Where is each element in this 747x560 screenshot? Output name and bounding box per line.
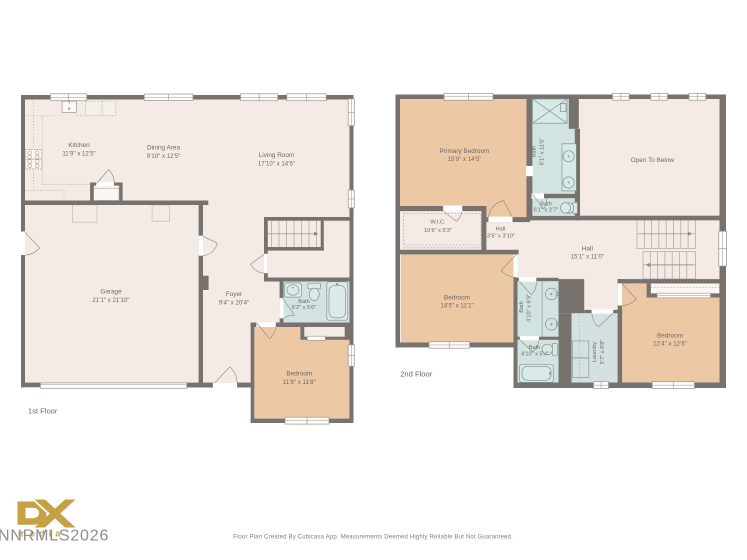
svg-text:6’2" x 5’0": 6’2" x 5’0" — [292, 305, 317, 311]
svg-text:2nd Floor: 2nd Floor — [400, 370, 433, 379]
svg-text:Laundry: Laundry — [592, 342, 598, 362]
svg-text:Bath: Bath — [519, 301, 525, 313]
svg-text:Bedroom: Bedroom — [286, 371, 312, 378]
svg-text:Garage: Garage — [100, 289, 122, 296]
svg-text:Floor Plan Created By Cubicasa: Floor Plan Created By Cubicasa App. Meas… — [233, 535, 513, 541]
svg-text:12’4" x 12’6": 12’4" x 12’6" — [653, 341, 687, 348]
svg-text:NNRMLS2026: NNRMLS2026 — [0, 528, 109, 545]
svg-text:1st Floor: 1st Floor — [28, 407, 58, 416]
svg-text:Bath: Bath — [529, 345, 541, 351]
svg-text:Primary Bedroom: Primary Bedroom — [440, 148, 490, 155]
svg-text:9’10" x 12’5": 9’10" x 12’5" — [147, 153, 181, 160]
svg-text:Living Room: Living Room — [259, 152, 295, 159]
svg-text:Bath: Bath — [532, 146, 538, 158]
svg-text:9’4" x 20’4": 9’4" x 20’4" — [219, 300, 249, 307]
svg-text:11’9" x 12’5": 11’9" x 12’5" — [62, 151, 95, 158]
svg-text:Bedroom: Bedroom — [657, 333, 683, 340]
svg-text:Hall: Hall — [582, 246, 593, 253]
svg-text:Bedroom: Bedroom — [444, 294, 470, 301]
svg-text:6’1" x 11’6": 6’1" x 11’6" — [540, 138, 546, 166]
svg-text:21’1" x 21’10": 21’1" x 21’10" — [92, 297, 129, 304]
svg-text:Open To Below: Open To Below — [631, 157, 675, 164]
svg-text:4’10" x 6’9": 4’10" x 6’9" — [527, 294, 533, 322]
svg-text:Kitchen: Kitchen — [68, 142, 90, 149]
svg-text:4’10" x 5’4": 4’10" x 5’4" — [521, 351, 549, 357]
svg-text:5’7" x 8’8": 5’7" x 8’8" — [600, 340, 606, 365]
svg-text:3’6" x 3’10": 3’6" x 3’10" — [487, 234, 515, 240]
svg-text:Foyer: Foyer — [226, 291, 243, 298]
svg-text:11’8" x 11’8": 11’8" x 11’8" — [283, 379, 316, 386]
svg-text:15’1" x 11’0": 15’1" x 11’0" — [571, 253, 604, 260]
svg-text:10’6" x 5’3": 10’6" x 5’3" — [424, 228, 452, 234]
svg-text:Dining Area: Dining Area — [147, 145, 180, 152]
svg-text:15’9" x 14’5": 15’9" x 14’5" — [448, 156, 482, 163]
svg-text:Hall: Hall — [496, 227, 506, 233]
svg-text:6’1" x 2’7": 6’1" x 2’7" — [534, 207, 559, 213]
svg-text:W.I.C.: W.I.C. — [430, 220, 446, 226]
svg-text:17’10" x 14’5": 17’10" x 14’5" — [258, 161, 295, 168]
svg-text:14’5" x 11’1": 14’5" x 11’1" — [440, 303, 473, 310]
